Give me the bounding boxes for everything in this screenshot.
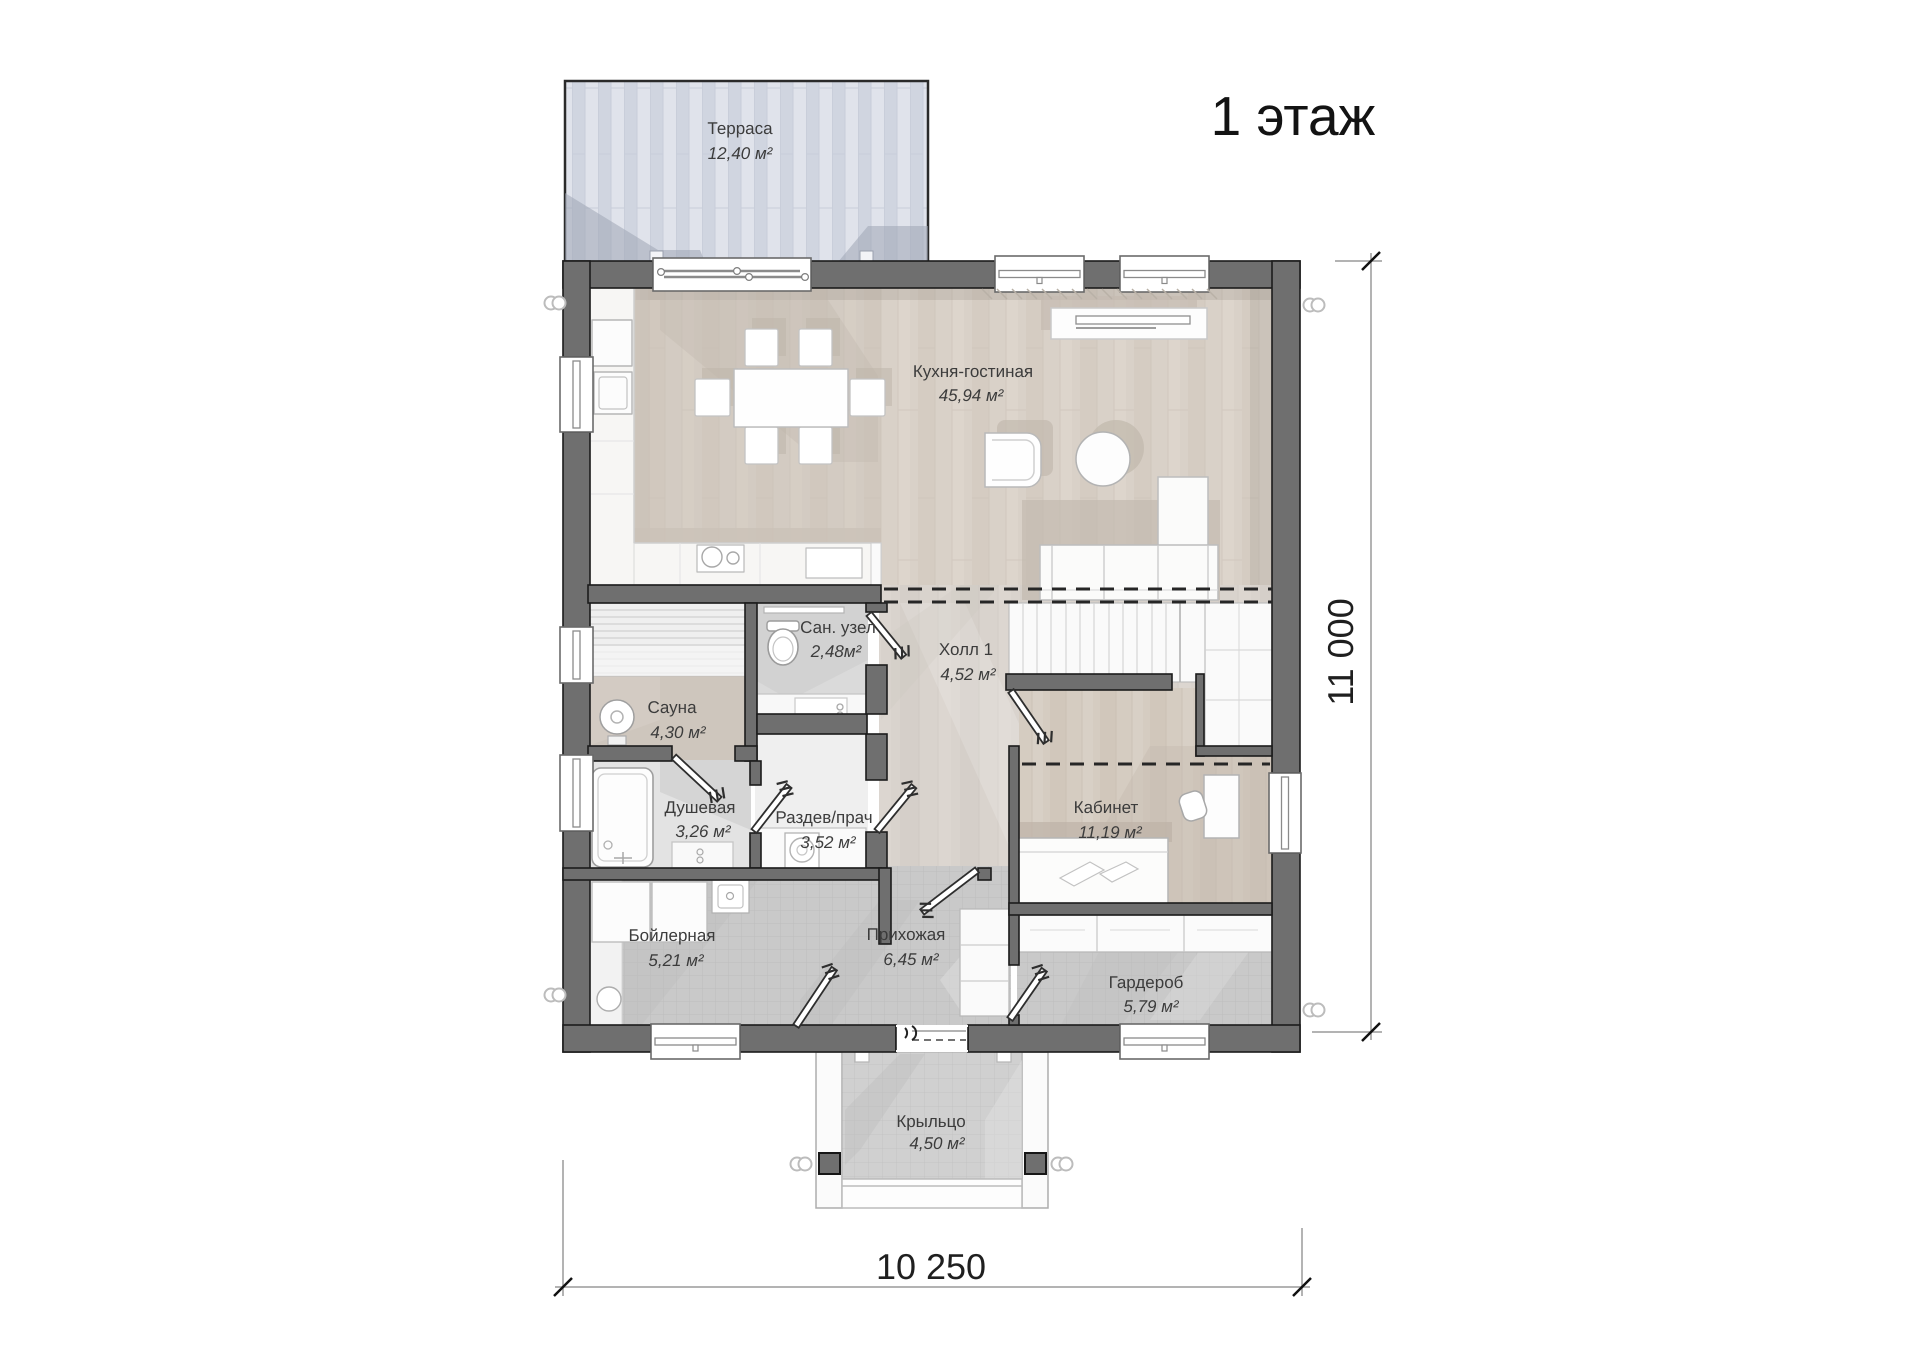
svg-text:45,94 м²: 45,94 м²	[939, 386, 1005, 405]
svg-text:Прихожая: Прихожая	[867, 925, 946, 944]
svg-text:Душевая: Душевая	[665, 798, 736, 817]
svg-text:5,79 м²: 5,79 м²	[1123, 997, 1179, 1016]
svg-text:4,52 м²: 4,52 м²	[940, 665, 996, 684]
svg-text:12,40 м²: 12,40 м²	[708, 144, 774, 163]
svg-text:5,21 м²: 5,21 м²	[648, 951, 704, 970]
svg-text:Сан. узел: Сан. узел	[800, 618, 876, 637]
svg-text:11 000: 11 000	[1320, 598, 1361, 705]
svg-text:2,48м²: 2,48м²	[810, 642, 863, 661]
svg-text:Крыльцо: Крыльцо	[896, 1112, 965, 1131]
svg-text:1 этаж: 1 этаж	[1211, 85, 1376, 147]
svg-text:Гардероб: Гардероб	[1109, 973, 1184, 992]
svg-text:11,19 м²: 11,19 м²	[1078, 823, 1143, 842]
svg-text:Бойлерная: Бойлерная	[629, 926, 716, 945]
svg-text:4,50 м²: 4,50 м²	[909, 1134, 965, 1153]
svg-text:10 250: 10 250	[876, 1246, 986, 1287]
svg-text:6,45 м²: 6,45 м²	[883, 950, 939, 969]
svg-text:Кабинет: Кабинет	[1074, 798, 1139, 817]
svg-text:4,30 м²: 4,30 м²	[650, 723, 706, 742]
svg-text:Терраса: Терраса	[707, 119, 773, 138]
svg-text:3,52 м²: 3,52 м²	[800, 833, 856, 852]
svg-text:3,26 м²: 3,26 м²	[675, 822, 731, 841]
svg-text:Раздев/прач: Раздев/прач	[775, 808, 872, 827]
svg-text:Сауна: Сауна	[647, 698, 697, 717]
svg-text:Кухня-гостиная: Кухня-гостиная	[913, 362, 1033, 381]
svg-text:Холл 1: Холл 1	[939, 640, 993, 659]
